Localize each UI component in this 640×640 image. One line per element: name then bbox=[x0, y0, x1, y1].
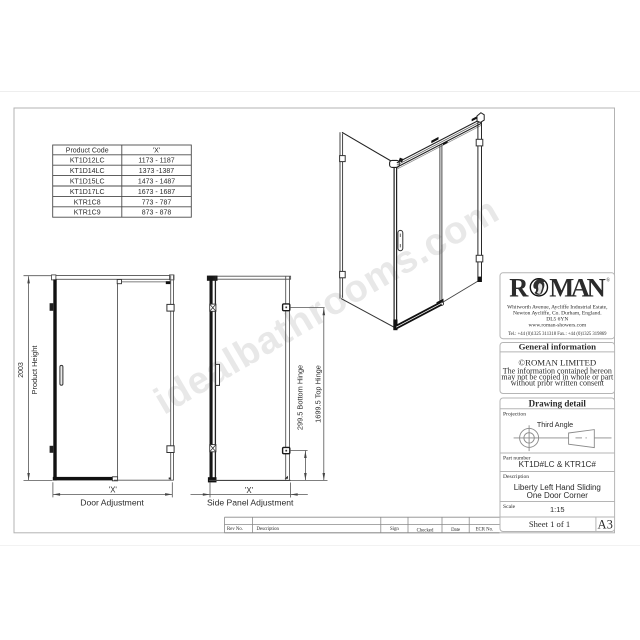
svg-text:Side Panel Adjustment: Side Panel Adjustment bbox=[207, 498, 294, 508]
svg-text:1173 - 1187: 1173 - 1187 bbox=[138, 158, 174, 165]
svg-text:'X': 'X' bbox=[109, 486, 118, 495]
svg-text:1699.5 Top Hinge: 1699.5 Top Hinge bbox=[313, 365, 322, 423]
svg-text:Third Angle: Third Angle bbox=[537, 420, 573, 429]
svg-text:Sheet 1 of 1: Sheet 1 of 1 bbox=[529, 519, 570, 529]
svg-text:Sign: Sign bbox=[390, 527, 399, 532]
svg-text:873 - 878: 873 - 878 bbox=[142, 210, 172, 217]
svg-text:1473 - 1487: 1473 - 1487 bbox=[138, 179, 175, 186]
svg-text:2003: 2003 bbox=[18, 362, 25, 378]
svg-text:Description: Description bbox=[503, 474, 529, 480]
svg-text:www.roman-showers.com: www.roman-showers.com bbox=[528, 323, 586, 329]
svg-text:KT1D12LC: KT1D12LC bbox=[70, 158, 105, 165]
svg-text:One Door Corner: One Door Corner bbox=[527, 491, 589, 500]
svg-text:299.5 Bottom Hinge: 299.5 Bottom Hinge bbox=[296, 365, 305, 430]
svg-text:Date: Date bbox=[451, 528, 460, 533]
svg-text:A3: A3 bbox=[598, 518, 613, 532]
svg-text:®: ® bbox=[606, 278, 610, 284]
svg-text:'X': 'X' bbox=[153, 147, 160, 154]
svg-text:R: R bbox=[509, 273, 529, 303]
svg-text:Projection: Projection bbox=[503, 411, 526, 417]
svg-text:General information: General information bbox=[519, 342, 597, 352]
svg-text:ECR No.: ECR No. bbox=[476, 528, 494, 533]
svg-text:Rev No.: Rev No. bbox=[227, 527, 243, 532]
svg-text:KT1D15LC: KT1D15LC bbox=[70, 179, 105, 186]
svg-text:Newton Aycliffe, Co. Durham, E: Newton Aycliffe, Co. Durham, England. bbox=[513, 310, 602, 317]
svg-text:1373 -1387: 1373 -1387 bbox=[139, 168, 175, 175]
svg-text:Checked: Checked bbox=[417, 529, 434, 534]
svg-text:773 - 787: 773 - 787 bbox=[142, 199, 172, 206]
svg-text:without prior written consent: without prior written consent bbox=[511, 379, 605, 388]
svg-text:KT1D17LC: KT1D17LC bbox=[70, 189, 105, 196]
svg-text:Whitworth Avenue, Aycliffe Ind: Whitworth Avenue, Aycliffe Industrial Es… bbox=[507, 304, 608, 311]
svg-text:KTR1C9: KTR1C9 bbox=[74, 210, 101, 217]
svg-text:MAN: MAN bbox=[549, 273, 606, 303]
svg-text:Description: Description bbox=[257, 527, 280, 532]
svg-text:Door Adjustment: Door Adjustment bbox=[80, 497, 144, 507]
svg-text:KTR1C8: KTR1C8 bbox=[74, 199, 101, 206]
svg-text:1673 - 1687: 1673 - 1687 bbox=[138, 189, 175, 196]
svg-text:Product Code: Product Code bbox=[66, 147, 109, 154]
svg-text:KT1D14LC: KT1D14LC bbox=[70, 168, 105, 175]
svg-text:Tel.: +44 (0)1325 311318 F: Tel.: +44 (0)1325 311318 Fax.: +44 (0)13… bbox=[508, 332, 607, 337]
svg-text:Product Height: Product Height bbox=[30, 346, 39, 395]
svg-text:1:15: 1:15 bbox=[550, 505, 565, 514]
svg-text:KT1D#LC & KTR1C#: KT1D#LC & KTR1C# bbox=[519, 460, 597, 469]
svg-text:Scale: Scale bbox=[503, 504, 516, 510]
svg-text:Drawing detail: Drawing detail bbox=[529, 398, 587, 408]
svg-text:'X': 'X' bbox=[245, 486, 254, 495]
